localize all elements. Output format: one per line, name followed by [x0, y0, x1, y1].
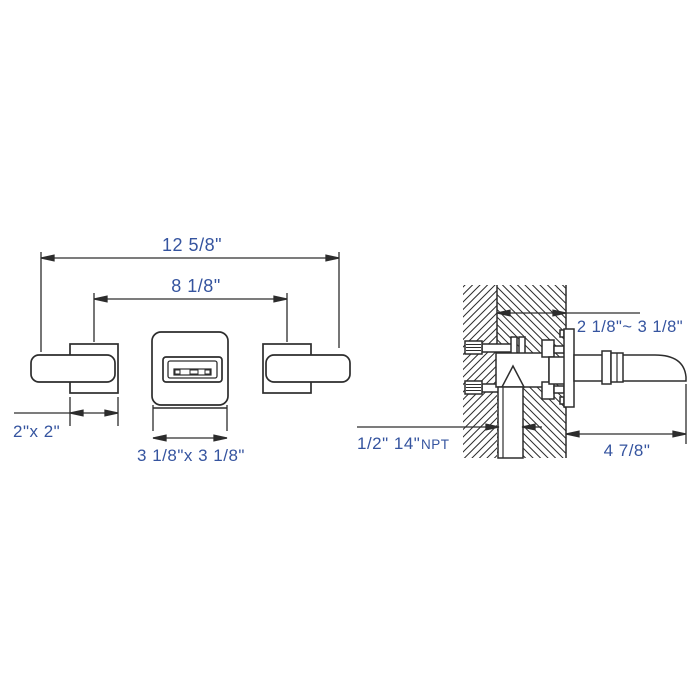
inlet-thread-suffix-label: NPT	[421, 437, 450, 452]
mount-rod-top	[554, 346, 564, 353]
wall-hatch-inner	[463, 285, 497, 458]
spout-nut-ring	[602, 351, 611, 384]
top-screw-shaft	[482, 344, 512, 352]
spout-connector	[549, 357, 565, 384]
arrowhead-left	[41, 255, 54, 261]
aerator-tab	[205, 370, 210, 374]
left-handle	[31, 344, 118, 393]
dimension-plate-size: 3 1/8"x 3 1/8"	[137, 405, 245, 465]
plate-size-label: 3 1/8"x 3 1/8"	[137, 446, 245, 465]
aerator-tab	[190, 370, 198, 374]
arrowhead-left	[566, 431, 579, 437]
handle-size-label: 2"x 2"	[13, 422, 60, 441]
arrowhead-left	[94, 296, 107, 302]
left-handle-lever	[31, 355, 115, 382]
right-handle-lever	[266, 355, 350, 382]
aerator-tab	[175, 370, 180, 374]
arrowhead-left	[70, 410, 83, 416]
dimension-spout-reach: 4 7/8"	[566, 384, 686, 460]
spout-tube	[574, 355, 686, 381]
right-handle	[263, 344, 350, 393]
spout-reach-label: 4 7/8"	[604, 441, 651, 460]
product-dimension-drawing: 12 5/8" 8 1/8"	[0, 0, 700, 700]
dimension-handle-size: 2"x 2"	[13, 397, 118, 441]
arrowhead-right	[326, 255, 339, 261]
drawing-root: 12 5/8" 8 1/8"	[13, 235, 686, 465]
arrowhead-left	[153, 435, 166, 441]
valve-assembly	[465, 329, 686, 458]
mount-clip-top	[542, 340, 554, 357]
supply-pipe	[498, 387, 523, 458]
wall-thickness-label: 2 1/8"~ 3 1/8"	[577, 318, 683, 336]
spout-flange	[564, 329, 574, 407]
handle-spacing-label: 8 1/8"	[171, 276, 220, 296]
front-view: 12 5/8" 8 1/8"	[13, 235, 350, 465]
arrowhead-right	[105, 410, 118, 416]
overall-width-label: 12 5/8"	[162, 235, 222, 255]
arrowhead-right	[673, 431, 686, 437]
inlet-thread-label: 1/2" 14"	[357, 434, 420, 453]
arrowhead-right	[274, 296, 287, 302]
spout-plate	[152, 332, 228, 408]
drawing-canvas: 12 5/8" 8 1/8"	[0, 0, 700, 700]
arrowhead-right	[214, 435, 227, 441]
side-view: 2 1/8"~ 3 1/8" 1/2" 14" NPT 4 7/8"	[357, 285, 686, 460]
mount-rod-bottom	[554, 386, 564, 393]
